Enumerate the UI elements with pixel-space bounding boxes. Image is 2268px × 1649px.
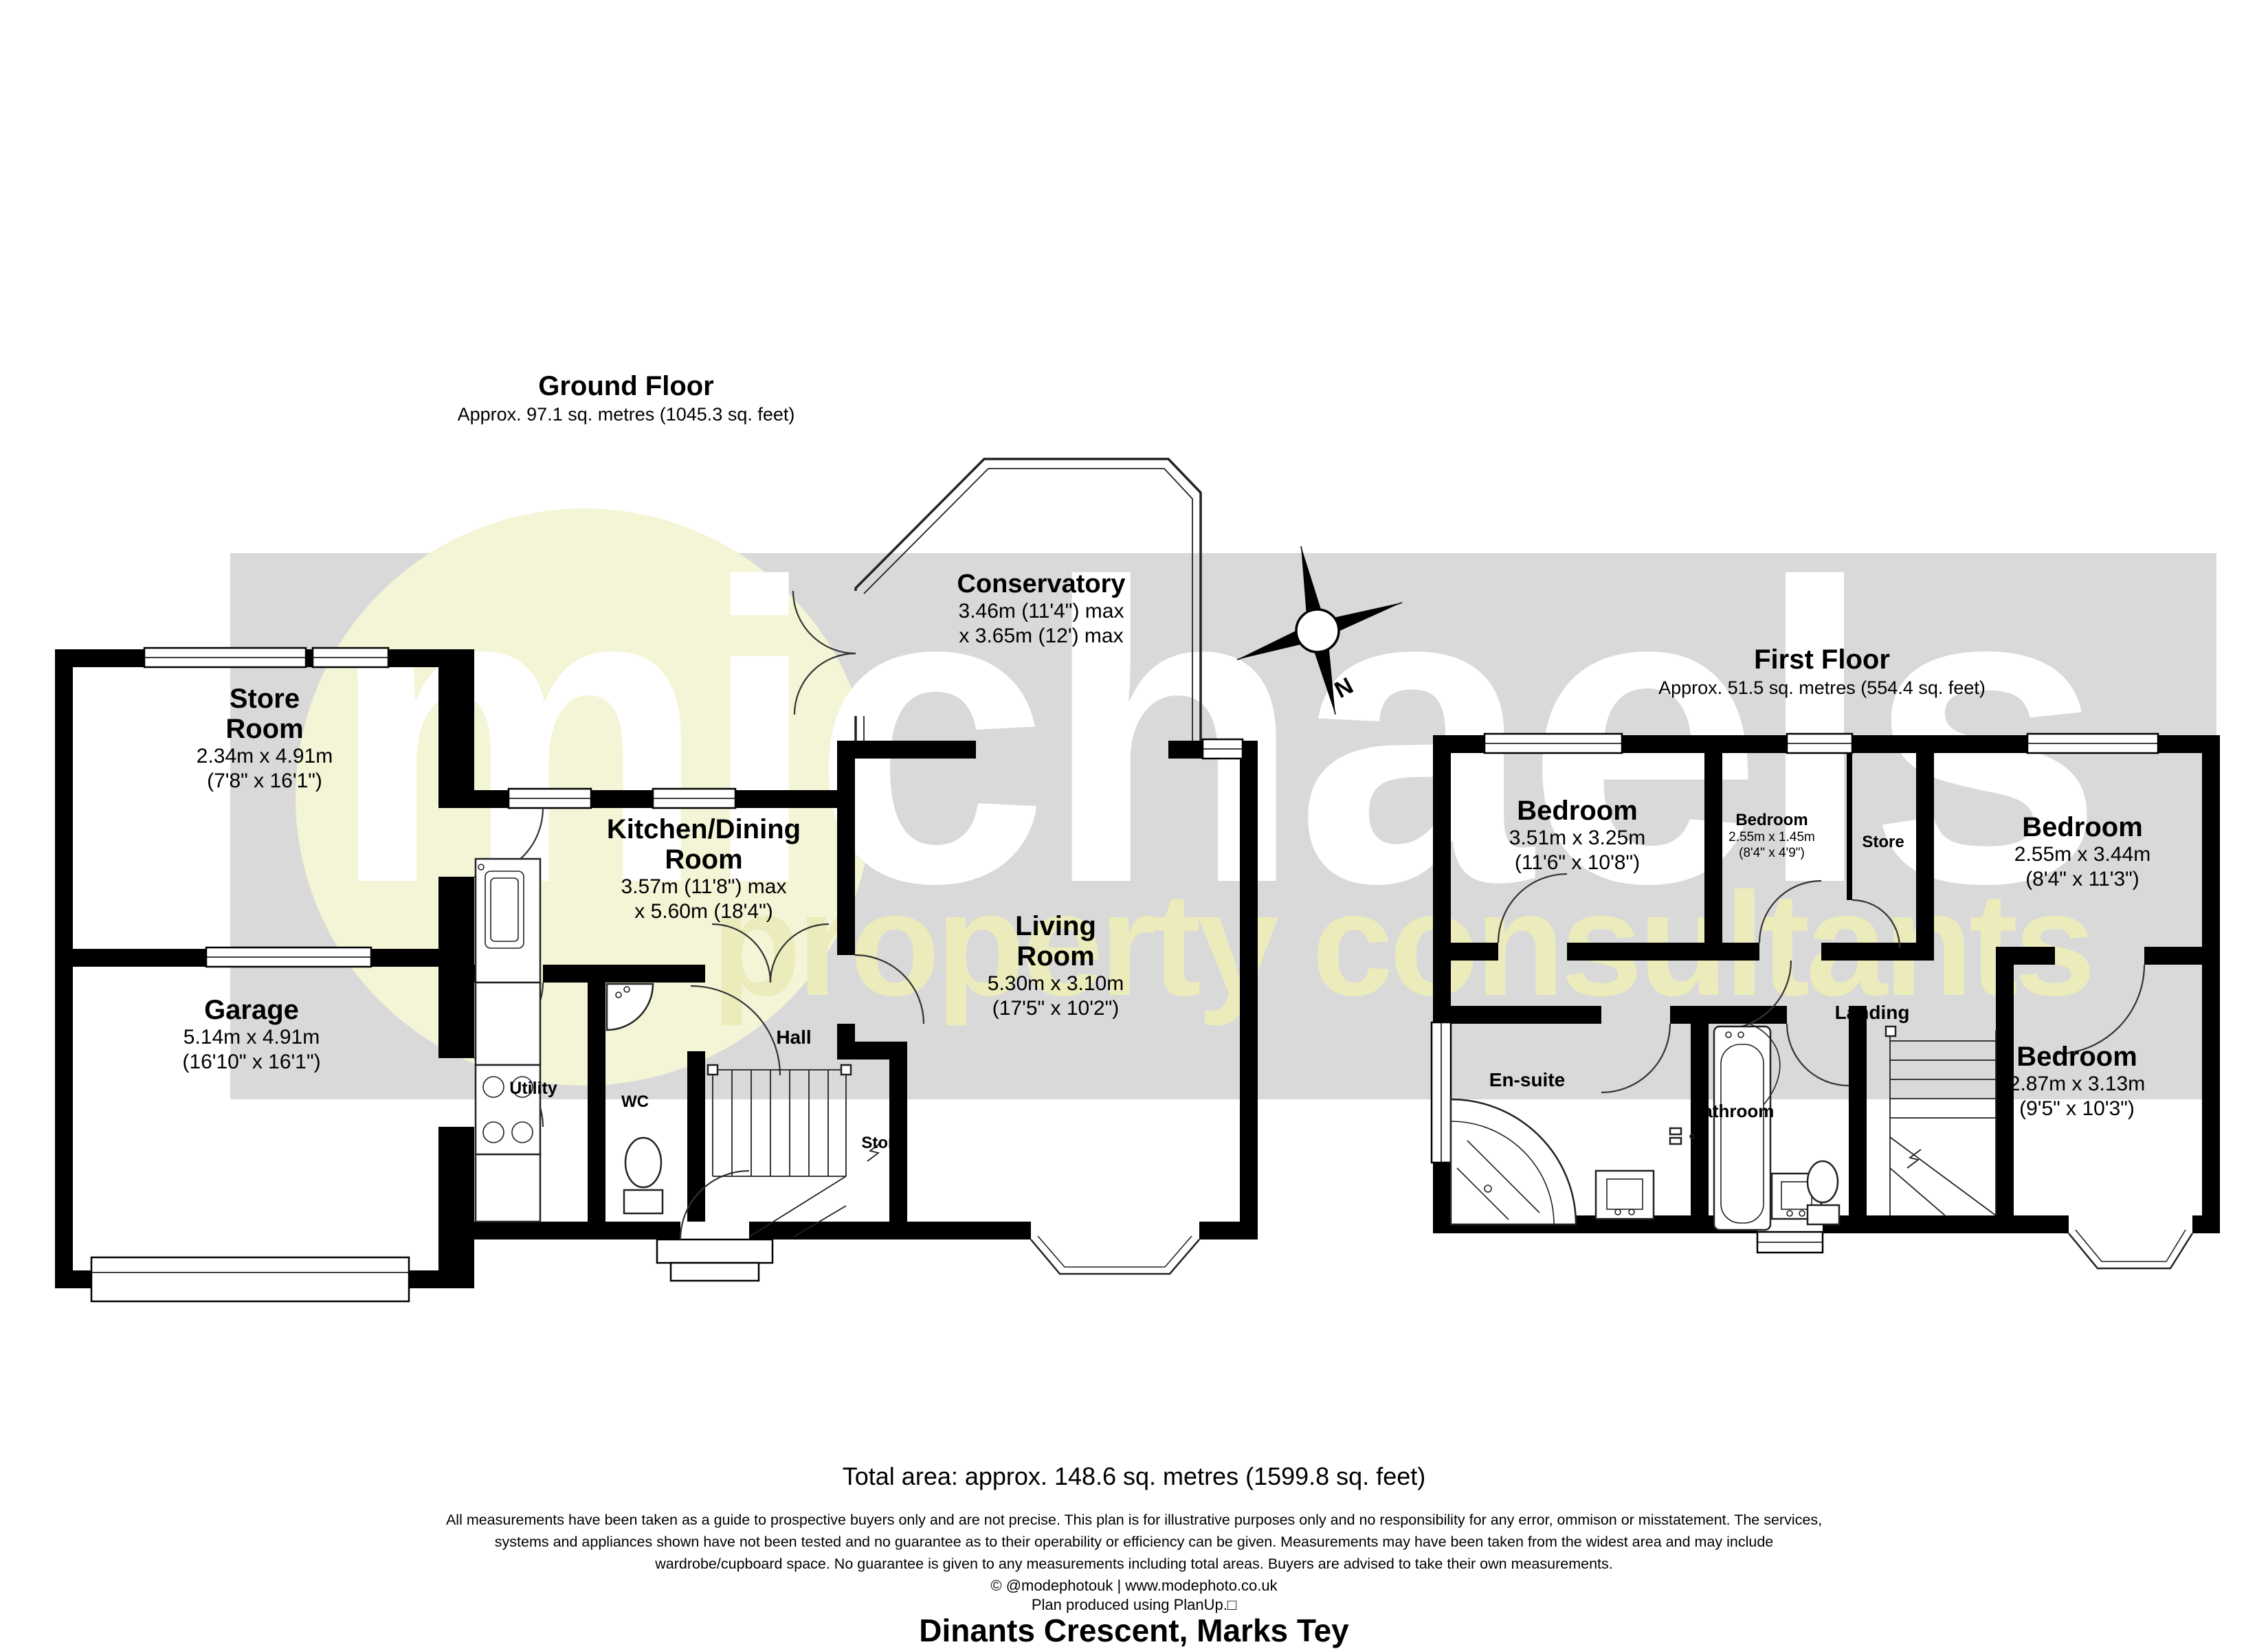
room-label-utility: Utility <box>509 1079 557 1099</box>
room-label-en-suite: En-suite <box>1489 1069 1565 1091</box>
compass-icon: N <box>1237 546 1402 715</box>
total-area-text: Total area: approx. 148.6 sq. metres (15… <box>843 1462 1425 1491</box>
garage-door <box>91 1257 409 1301</box>
room-label-living-room: Living Room 5.30m x 3.10m (17'5" x 10'2"… <box>988 911 1124 1021</box>
room-label-wc: WC <box>621 1092 649 1112</box>
room-label-store-gf: Store <box>861 1134 903 1153</box>
shower-icon <box>1451 1099 1576 1224</box>
room-label-hall: Hall <box>776 1027 811 1048</box>
disclaimer-text: All measurements have been taken as a gu… <box>34 1509 2234 1575</box>
first-floor-title: First Floor Approx. 51.5 sq. metres (554… <box>1658 643 1986 699</box>
floorplan-page: michaels property consultants <box>0 0 2268 1649</box>
stairs-icon <box>1886 1027 1996 1215</box>
room-label-conservatory: Conservatory 3.46m (11'4") max x 3.65m (… <box>957 569 1126 649</box>
room-label-landing: Landing <box>1835 1002 1910 1024</box>
entrance-steps <box>657 1239 772 1281</box>
bay-window <box>1031 1236 1199 1274</box>
room-label-bedroom-2: Bedroom 2.55m x 1.45m (8'4" x 4'9") <box>1728 811 1815 861</box>
bath-icon <box>1714 1027 1770 1230</box>
stairs-icon <box>708 1065 881 1237</box>
compass-north-label: N <box>1331 673 1358 704</box>
room-label-bedroom-3: Bedroom 2.55m x 3.44m (8'4" x 11'3") <box>2014 812 2150 892</box>
room-label-bathroom: Bathroom <box>1690 1101 1775 1122</box>
ground-floor-title: Ground Floor Approx. 97.1 sq. metres (10… <box>458 370 795 426</box>
sink-icon <box>607 984 653 1030</box>
kitchen-sink-icon <box>476 859 540 983</box>
room-label-garage: Garage 5.14m x 4.91m (16'10" x 16'1") <box>182 995 320 1075</box>
room-label-bedroom-1: Bedroom 3.51m x 3.25m (11'6" x 10'8") <box>1509 796 1645 875</box>
property-address: Dinants Crescent, Marks Tey <box>919 1612 1349 1649</box>
floorplan-drawing: N <box>0 0 2268 1649</box>
ground-floor-area-text: Approx. 97.1 sq. metres (1045.3 sq. feet… <box>458 403 795 426</box>
bay-window <box>2069 1230 2192 1268</box>
first-floor-area-text: Approx. 51.5 sq. metres (554.4 sq. feet) <box>1658 676 1986 699</box>
sink-icon <box>1596 1171 1654 1219</box>
toilet-icon <box>1808 1161 1839 1224</box>
ground-floor-title-text: Ground Floor <box>458 370 795 403</box>
room-label-store-room: Store Room 2.34m x 4.91m (7'8" x 16'1") <box>197 684 333 794</box>
credit-text: © @modephotouk | www.modephoto.co.uk <box>990 1576 1277 1595</box>
first-floor-title-text: First Floor <box>1658 643 1986 676</box>
room-label-store-ff: Store <box>1862 833 1904 852</box>
room-label-kitchen-dining: Kitchen/Dining Room 3.57m (11'8") max x … <box>607 814 801 924</box>
toilet-icon <box>624 1138 663 1213</box>
room-label-bedroom-4: Bedroom 2.87m x 3.13m (9'5" x 10'3") <box>2009 1042 2145 1121</box>
